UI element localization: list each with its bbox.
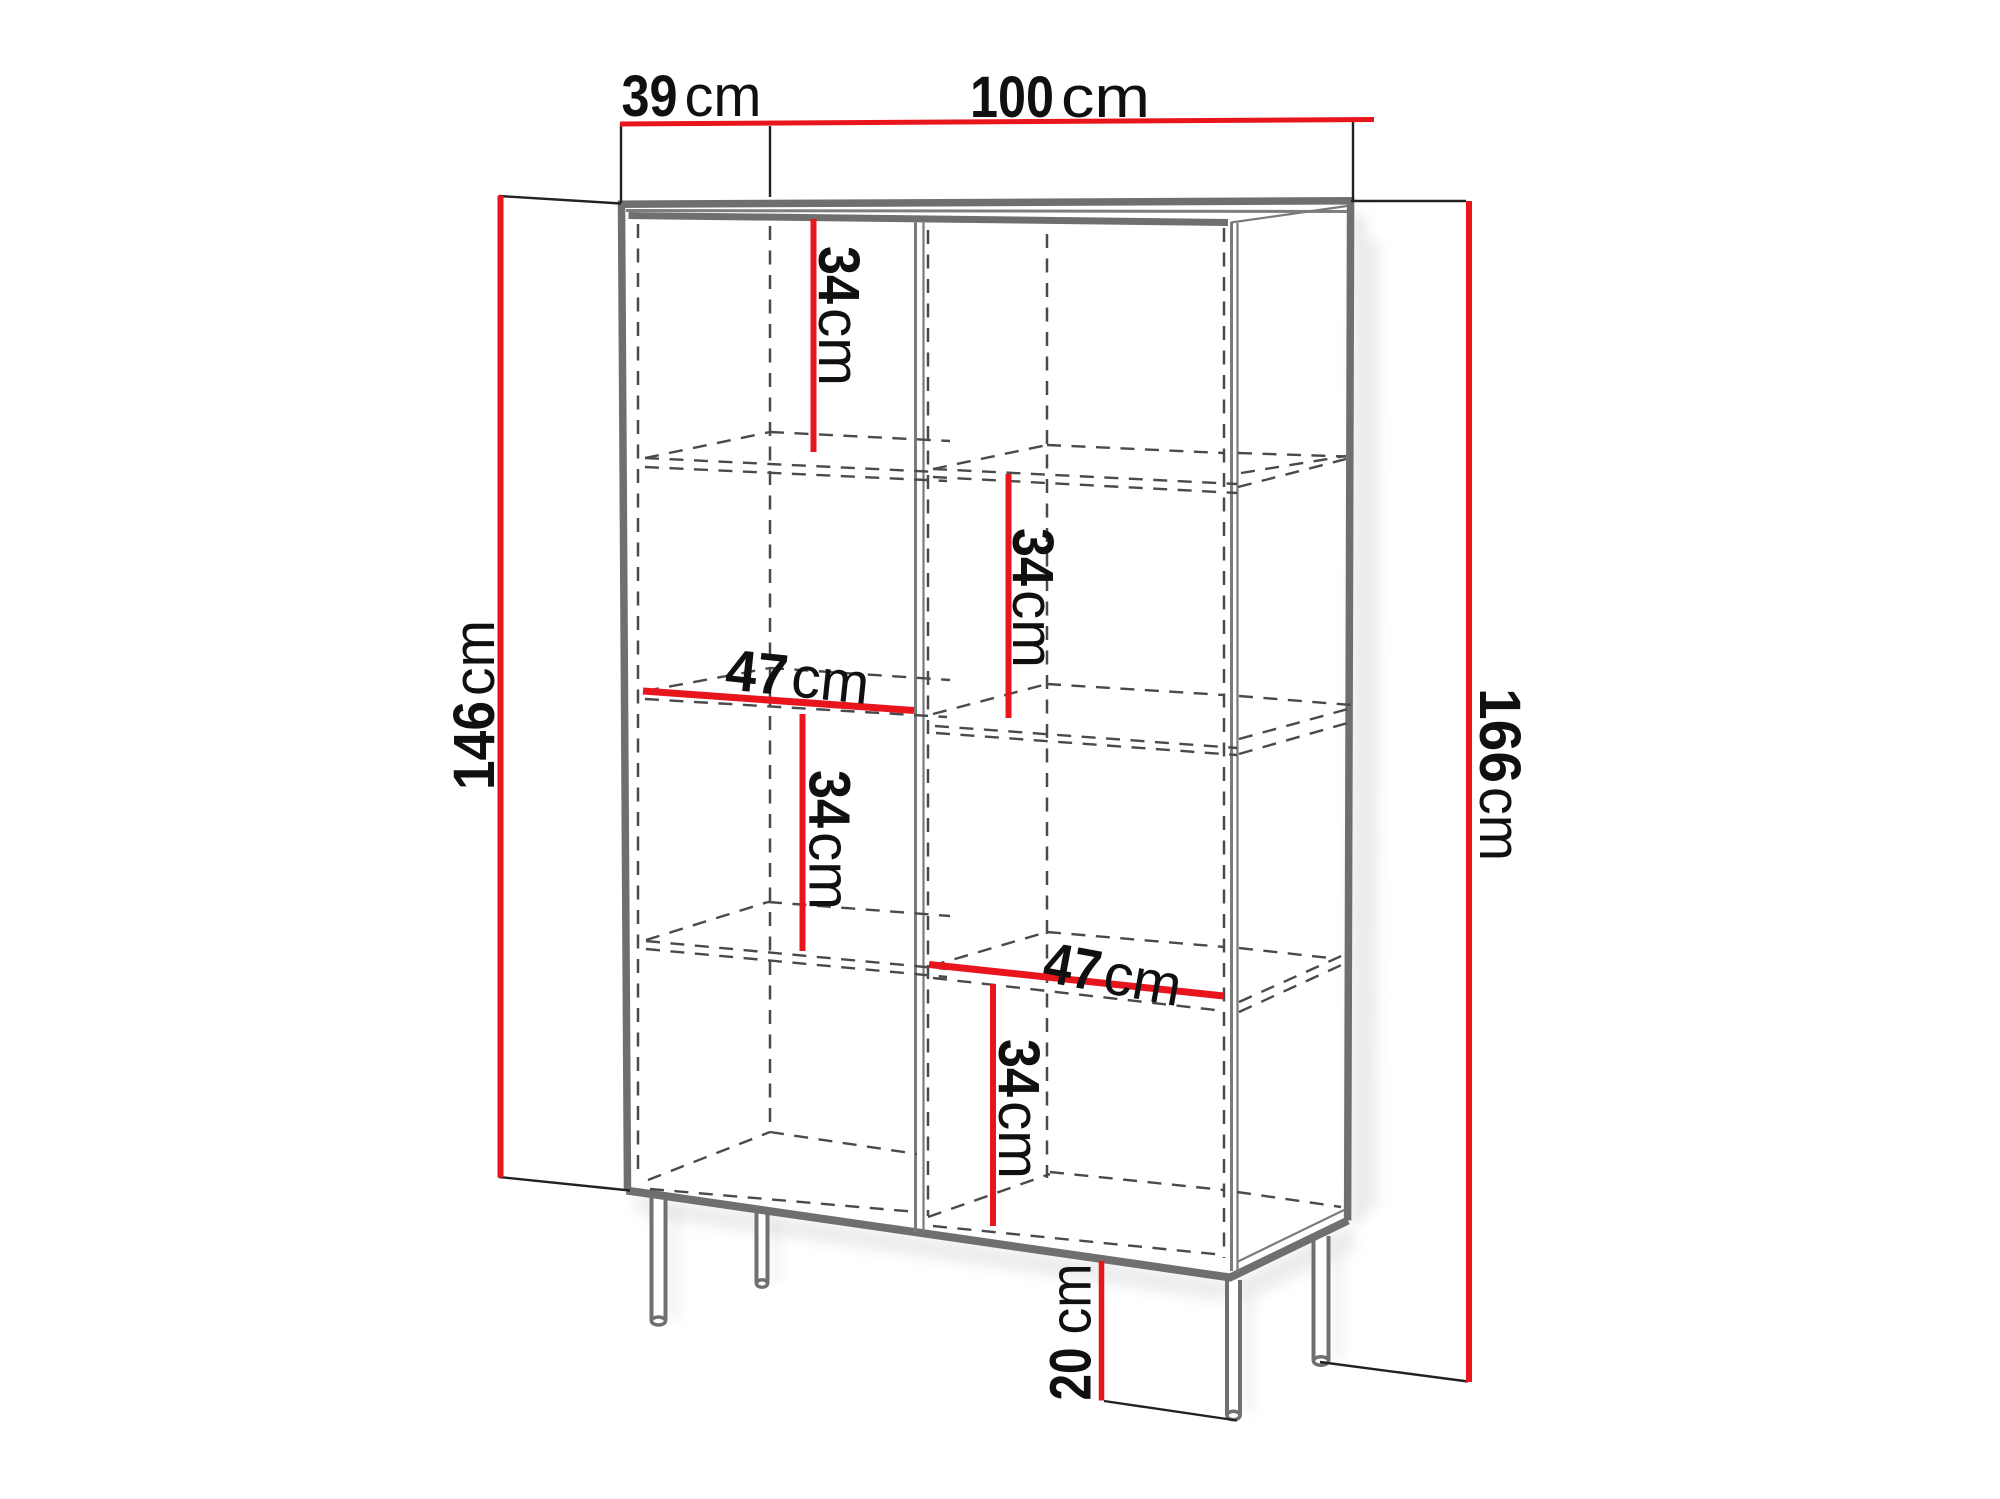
svg-text:cm: cm [1039,1264,1104,1335]
svg-text:39: 39 [622,64,678,129]
svg-text:cm: cm [788,644,872,717]
svg-text:cm: cm [1061,65,1150,130]
svg-text:34: 34 [986,1039,1051,1097]
svg-text:34: 34 [1000,528,1065,586]
svg-text:cm: cm [1000,590,1065,668]
svg-text:cm: cm [806,308,871,386]
svg-text:47: 47 [723,637,791,708]
svg-text:cm: cm [986,1101,1051,1179]
svg-text:34: 34 [797,770,862,828]
svg-text:166: 166 [1467,688,1532,783]
svg-text:cm: cm [797,832,862,910]
svg-text:34: 34 [806,246,871,304]
svg-text:cm: cm [1467,787,1532,861]
svg-text:cm: cm [442,620,507,696]
svg-text:47: 47 [1039,930,1107,1004]
svg-text:100: 100 [970,65,1054,130]
svg-text:146: 146 [442,701,507,790]
svg-text:cm: cm [685,64,762,129]
svg-text:20: 20 [1039,1348,1104,1401]
